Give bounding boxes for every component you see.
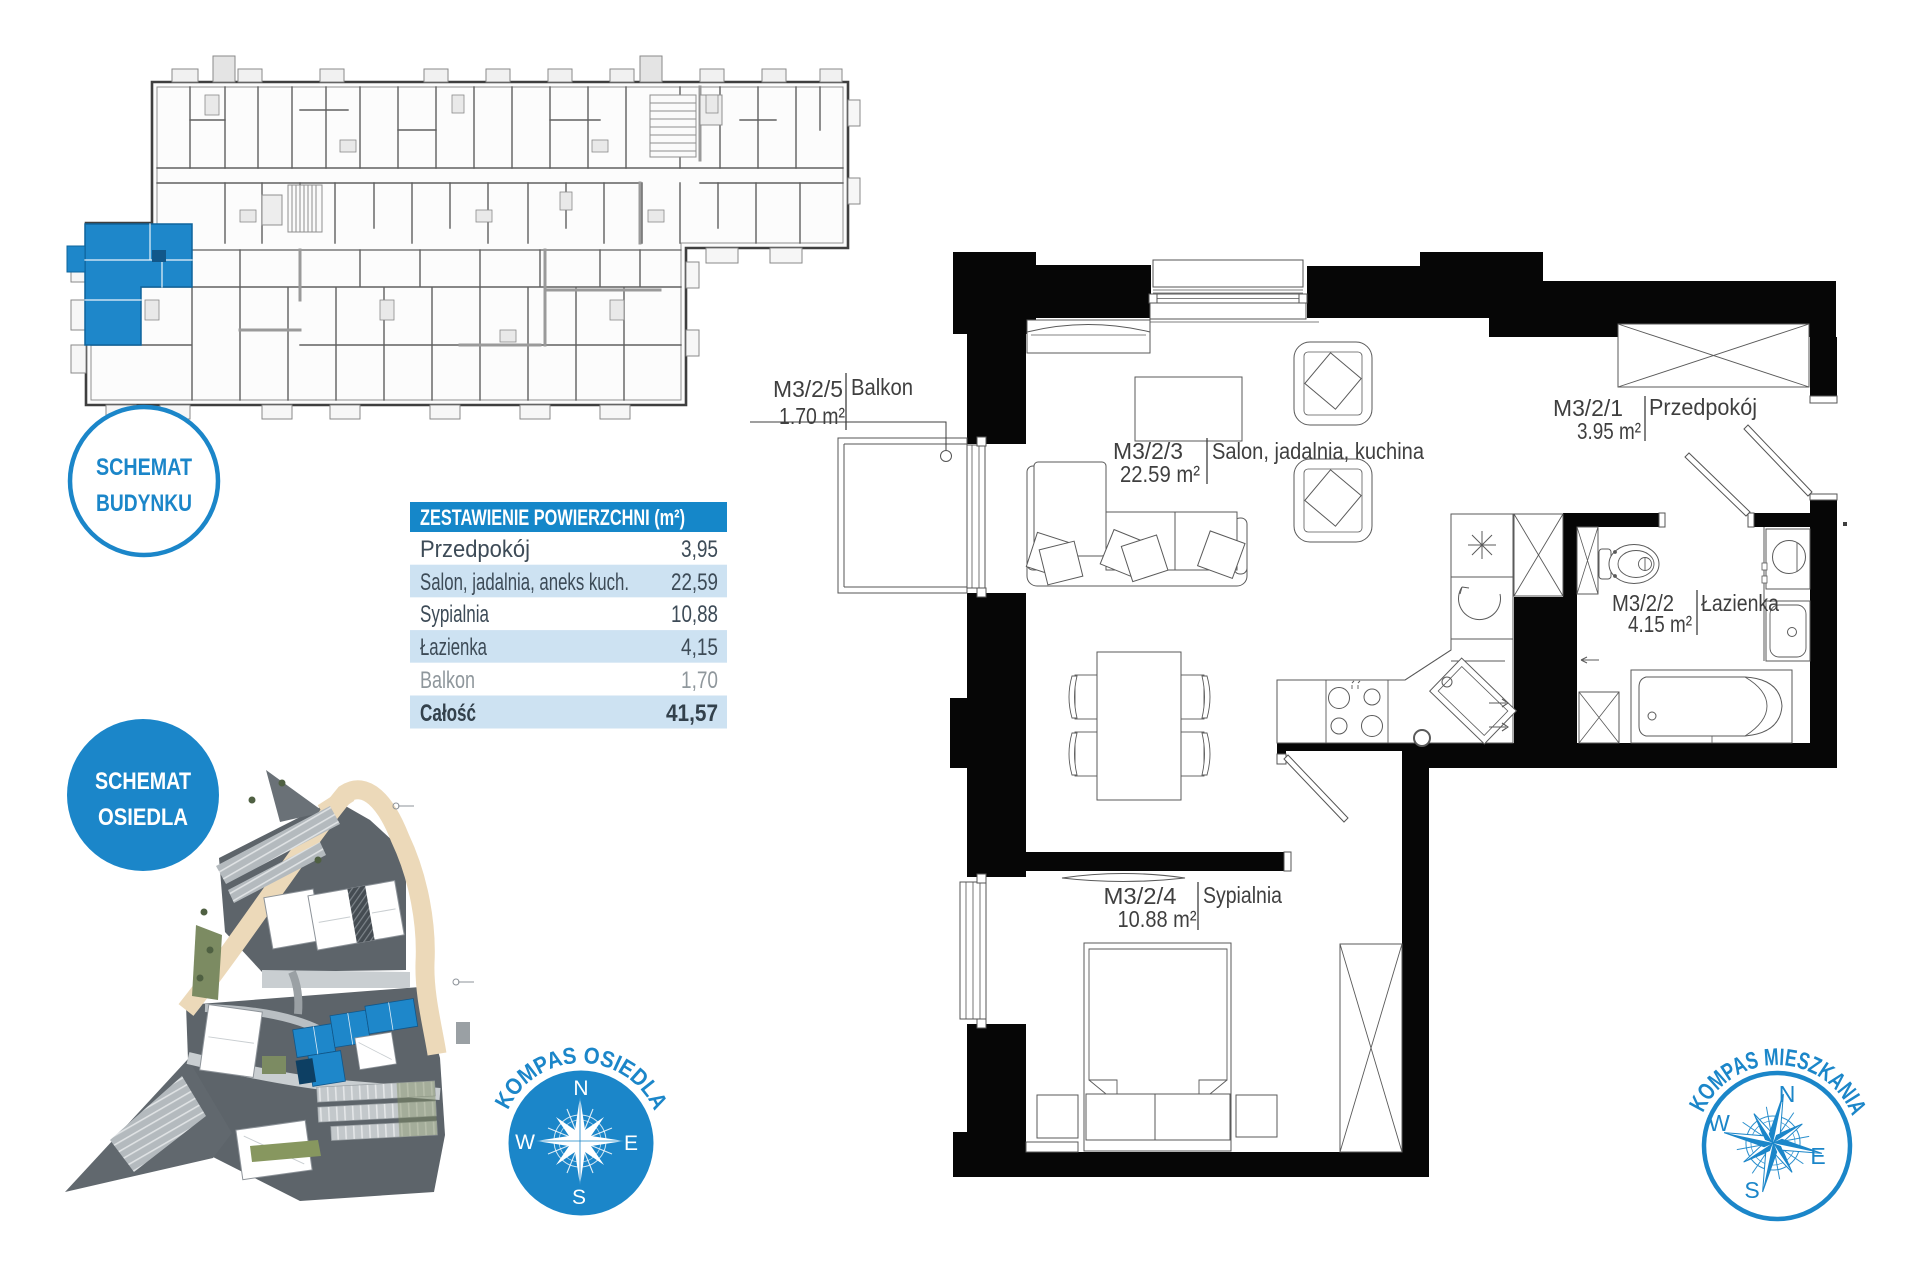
svg-text:Łazienka: Łazienka [1701, 590, 1779, 616]
svg-text:ZESTAWIENIE POWIERZCHNI (m²): ZESTAWIENIE POWIERZCHNI (m²) [420, 505, 685, 530]
svg-text:SCHEMAT: SCHEMAT [96, 454, 192, 481]
svg-text:4.15 m²: 4.15 m² [1628, 611, 1692, 637]
svg-text:3,95: 3,95 [681, 536, 718, 563]
svg-text:10.88 m²: 10.88 m² [1118, 906, 1197, 932]
svg-text:10,88: 10,88 [671, 601, 718, 628]
svg-text:1,70: 1,70 [681, 667, 718, 694]
svg-text:E: E [1810, 1143, 1825, 1169]
svg-text:OSIEDLA: OSIEDLA [98, 804, 188, 831]
svg-text:Balkon: Balkon [851, 374, 913, 400]
svg-text:22,59: 22,59 [671, 569, 718, 596]
svg-text:4,15: 4,15 [681, 634, 718, 661]
svg-text:Sypialnia: Sypialnia [420, 601, 489, 628]
svg-text:Przedpokój: Przedpokój [420, 536, 530, 563]
svg-text:S: S [572, 1186, 586, 1209]
svg-text:Łazienka: Łazienka [420, 634, 487, 661]
svg-text:22.59 m²: 22.59 m² [1120, 461, 1200, 487]
svg-text:Balkon: Balkon [420, 667, 475, 694]
svg-text:BUDYNKU: BUDYNKU [96, 490, 192, 517]
svg-text:Salon, jadalnia, aneks kuch.: Salon, jadalnia, aneks kuch. [420, 569, 629, 596]
svg-text:3.95 m²: 3.95 m² [1577, 418, 1641, 444]
svg-text:Salon, jadalnia, kuchina: Salon, jadalnia, kuchina [1212, 438, 1424, 464]
svg-text:N: N [1779, 1081, 1796, 1107]
svg-text:Przedpokój: Przedpokój [1649, 394, 1757, 420]
svg-text:1.70 m²: 1.70 m² [779, 403, 845, 429]
svg-text:Sypialnia: Sypialnia [1203, 882, 1282, 908]
svg-text:SCHEMAT: SCHEMAT [95, 768, 191, 795]
svg-text:Całość: Całość [420, 700, 476, 727]
svg-text:N: N [573, 1077, 588, 1100]
svg-text:41,57: 41,57 [666, 700, 718, 727]
svg-text:W: W [1708, 1110, 1730, 1136]
svg-text:S: S [1744, 1177, 1759, 1203]
svg-text:M3/2/5: M3/2/5 [773, 376, 843, 402]
svg-text:E: E [624, 1132, 638, 1155]
svg-text:W: W [515, 1131, 535, 1154]
